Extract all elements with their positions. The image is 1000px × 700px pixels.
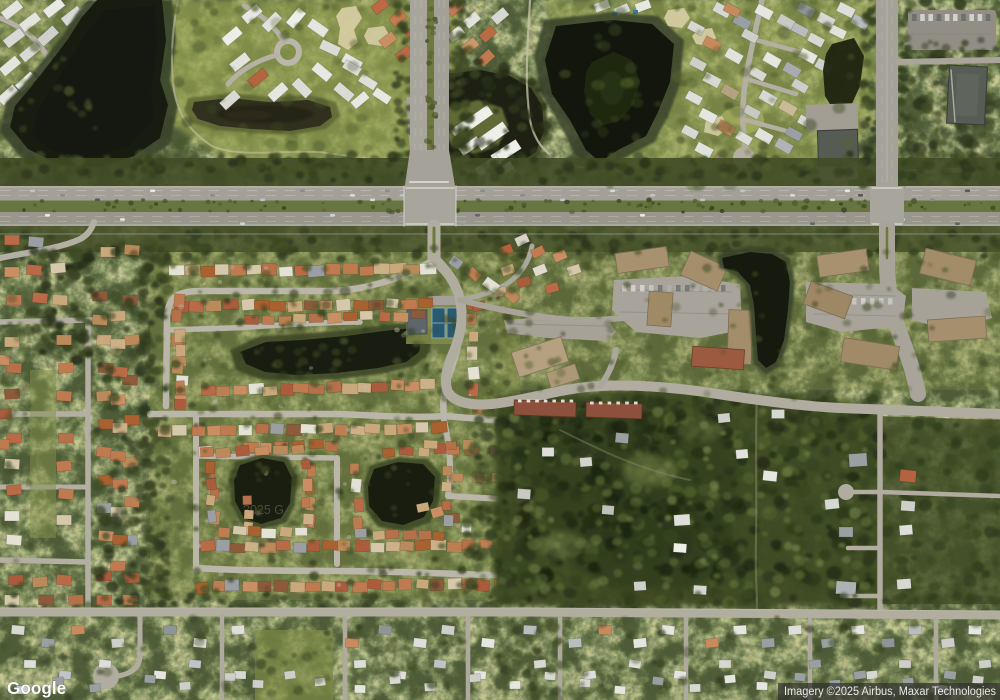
svg-text:Imagery ©2025 Airbus, Maxar Te: Imagery ©2025 Airbus, Maxar Technologies (784, 686, 996, 698)
svg-text:Google: Google (7, 678, 66, 698)
